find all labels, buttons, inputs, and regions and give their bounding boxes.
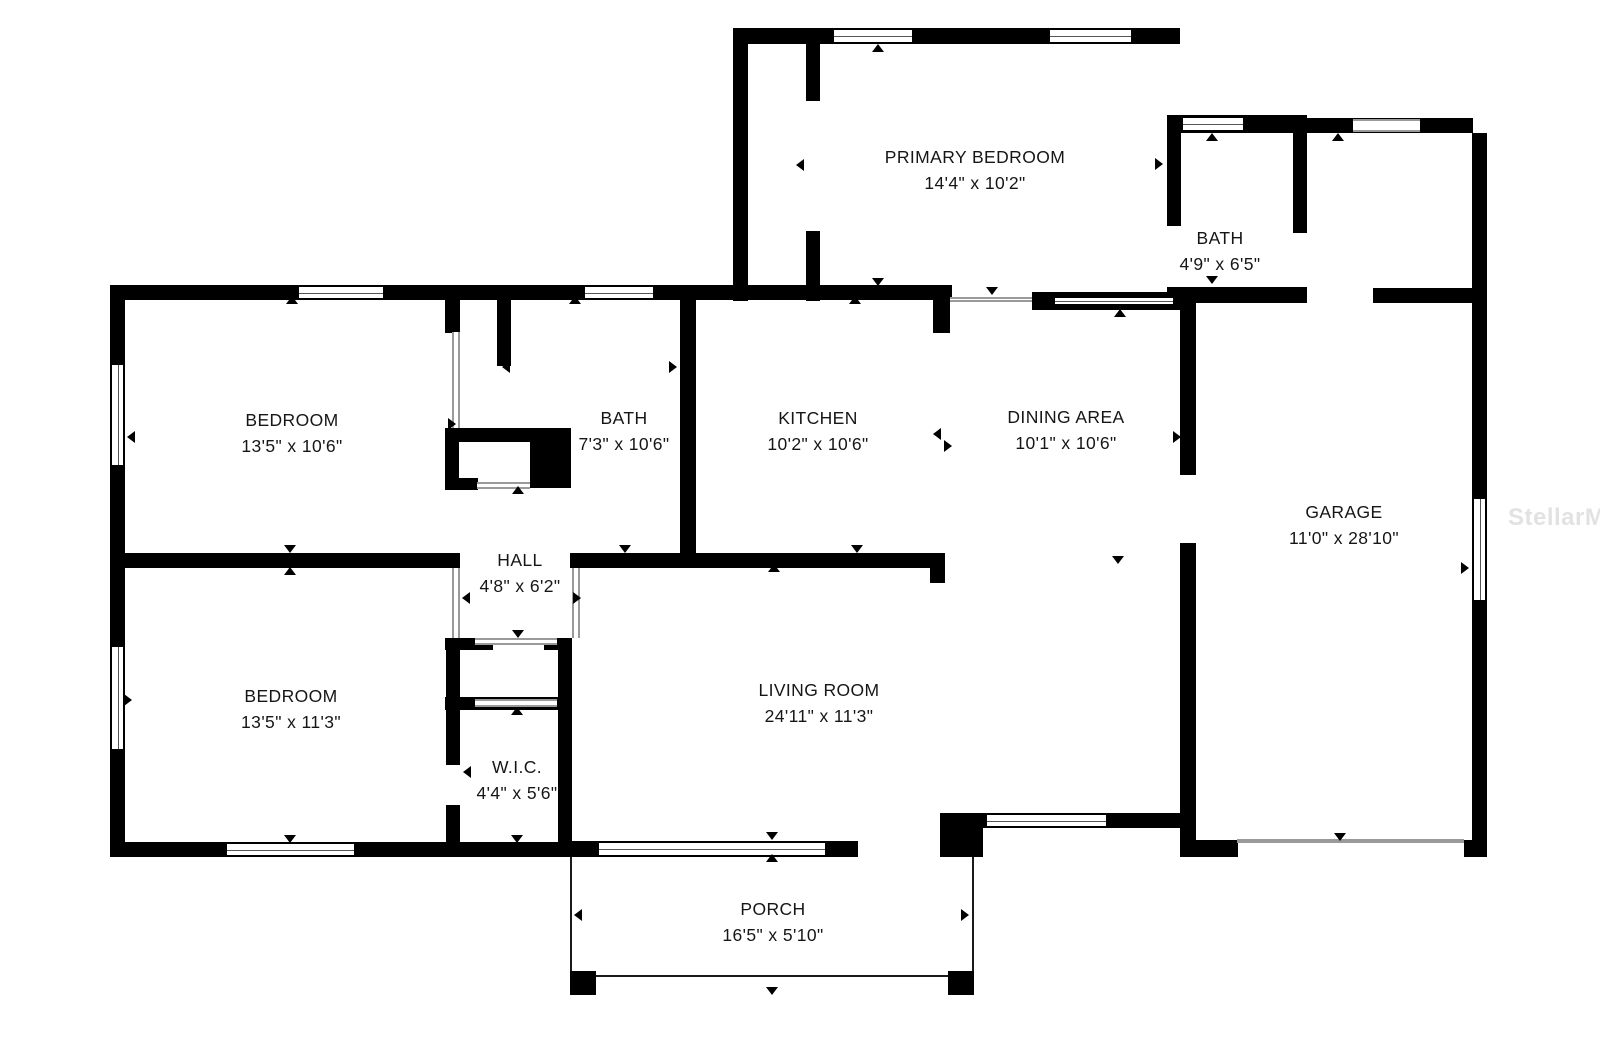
room-name: BEDROOM bbox=[241, 683, 341, 709]
wall-segment bbox=[558, 638, 572, 857]
room-name: BEDROOM bbox=[241, 407, 342, 433]
room-dimensions: 24'11" x 11'3" bbox=[758, 703, 879, 729]
wall-segment bbox=[497, 300, 511, 366]
window-mullion bbox=[1050, 36, 1131, 37]
direction-marker-icon bbox=[462, 592, 470, 604]
cased-opening bbox=[475, 699, 557, 707]
wall-segment bbox=[445, 300, 460, 333]
wall-segment bbox=[827, 841, 858, 857]
room-dimensions: 16'5" x 5'10" bbox=[722, 922, 823, 948]
room-name: HALL bbox=[480, 547, 561, 573]
room-name: BATH bbox=[578, 405, 669, 431]
room-label-porch: PORCH 16'5" x 5'10" bbox=[722, 896, 823, 948]
window-mullion bbox=[118, 365, 119, 465]
room-label-bedroom-lower: BEDROOM 13'5" x 11'3" bbox=[241, 683, 341, 735]
direction-marker-icon bbox=[768, 564, 780, 572]
window-mullion bbox=[834, 36, 912, 37]
cased-opening bbox=[452, 332, 460, 428]
wall-segment bbox=[806, 44, 820, 101]
direction-marker-icon bbox=[1206, 133, 1218, 141]
direction-marker-icon bbox=[1206, 276, 1218, 284]
wall-segment bbox=[1472, 133, 1487, 842]
direction-marker-icon bbox=[766, 854, 778, 862]
window-mullion bbox=[227, 850, 354, 851]
direction-marker-icon bbox=[944, 440, 952, 452]
room-label-primary-bedroom: PRIMARY BEDROOM 14'4" x 10'2" bbox=[885, 144, 1065, 196]
room-label-wic: W.I.C. 4'4" x 5'6" bbox=[477, 754, 558, 806]
direction-marker-icon bbox=[1155, 158, 1163, 170]
porch-outline bbox=[972, 857, 974, 975]
wall-segment bbox=[1196, 840, 1238, 857]
window bbox=[1053, 296, 1175, 306]
room-name: W.I.C. bbox=[477, 754, 558, 780]
wall-segment bbox=[570, 553, 942, 568]
room-name: LIVING ROOM bbox=[758, 677, 879, 703]
room-dimensions: 13'5" x 11'3" bbox=[241, 709, 341, 735]
direction-marker-icon bbox=[574, 909, 582, 921]
direction-marker-icon bbox=[619, 545, 631, 553]
window bbox=[1472, 497, 1487, 602]
room-name: GARAGE bbox=[1289, 499, 1399, 525]
direction-marker-icon bbox=[502, 361, 510, 373]
wall-segment bbox=[680, 300, 696, 568]
room-label-bath-top: BATH 4'9" x 6'5" bbox=[1180, 225, 1261, 277]
window bbox=[225, 842, 356, 857]
room-dimensions: 13'5" x 10'6" bbox=[241, 433, 342, 459]
wall-segment bbox=[446, 710, 460, 766]
direction-marker-icon bbox=[1461, 562, 1469, 574]
direction-marker-icon bbox=[1182, 687, 1190, 699]
direction-marker-icon bbox=[796, 159, 804, 171]
direction-marker-icon bbox=[284, 567, 296, 575]
room-dimensions: 14'4" x 10'2" bbox=[885, 170, 1065, 196]
direction-marker-icon bbox=[286, 296, 298, 304]
door-opening bbox=[446, 765, 460, 805]
direction-marker-icon bbox=[448, 418, 456, 430]
wall-segment bbox=[125, 553, 460, 568]
room-label-hall: HALL 4'8" x 6'2" bbox=[480, 547, 561, 599]
wall-segment bbox=[1464, 840, 1487, 857]
cased-opening bbox=[452, 568, 460, 638]
wall-segment bbox=[446, 650, 460, 698]
direction-marker-icon bbox=[511, 707, 523, 715]
direction-marker-icon bbox=[1114, 309, 1126, 317]
direction-marker-icon bbox=[872, 278, 884, 286]
direction-marker-icon bbox=[766, 832, 778, 840]
wall-segment bbox=[1180, 543, 1196, 857]
window-mullion bbox=[599, 849, 825, 850]
room-name: BATH bbox=[1180, 225, 1261, 251]
porch-post bbox=[948, 971, 974, 995]
direction-marker-icon bbox=[986, 287, 998, 295]
window bbox=[583, 285, 655, 300]
window-mullion bbox=[299, 293, 383, 294]
direction-marker-icon bbox=[872, 44, 884, 52]
porch-outline bbox=[570, 975, 974, 977]
wall-segment bbox=[1180, 310, 1196, 475]
room-label-garage: GARAGE 11'0" x 28'10" bbox=[1289, 499, 1399, 551]
room-dimensions: 4'9" x 6'5" bbox=[1180, 251, 1261, 277]
direction-marker-icon bbox=[933, 428, 941, 440]
window-mullion bbox=[987, 821, 1106, 822]
wall-segment bbox=[570, 841, 598, 857]
wall-segment bbox=[933, 300, 950, 333]
direction-marker-icon bbox=[512, 486, 524, 494]
window bbox=[110, 645, 125, 751]
direction-marker-icon bbox=[284, 545, 296, 553]
direction-marker-icon bbox=[1332, 133, 1344, 141]
window-mullion bbox=[1480, 499, 1481, 600]
window bbox=[297, 285, 385, 300]
room-dimensions: 10'2" x 10'6" bbox=[767, 431, 868, 457]
direction-marker-icon bbox=[284, 835, 296, 843]
window bbox=[985, 813, 1108, 828]
direction-marker-icon bbox=[463, 766, 471, 778]
window-mullion bbox=[1183, 124, 1243, 125]
wall-segment bbox=[530, 428, 571, 488]
room-dimensions: 4'4" x 5'6" bbox=[477, 780, 558, 806]
window-mullion bbox=[118, 647, 119, 749]
wall-segment bbox=[1293, 133, 1307, 233]
window bbox=[110, 363, 125, 467]
direction-marker-icon bbox=[669, 361, 677, 373]
wall-segment bbox=[445, 478, 478, 490]
room-label-bath-middle: BATH 7'3" x 10'6" bbox=[578, 405, 669, 457]
direction-marker-icon bbox=[127, 431, 135, 443]
window bbox=[1181, 116, 1245, 132]
direction-marker-icon bbox=[1112, 556, 1124, 564]
direction-marker-icon bbox=[573, 592, 581, 604]
direction-marker-icon bbox=[569, 296, 581, 304]
wall-segment bbox=[930, 553, 945, 583]
room-dimensions: 7'3" x 10'6" bbox=[578, 431, 669, 457]
cased-opening bbox=[950, 297, 1032, 302]
room-label-dining-area: DINING AREA 10'1" x 10'6" bbox=[1007, 404, 1124, 456]
direction-marker-icon bbox=[124, 694, 132, 706]
window bbox=[1048, 28, 1133, 44]
cased-opening bbox=[1237, 839, 1464, 843]
direction-marker-icon bbox=[512, 630, 524, 638]
room-dimensions: 11'0" x 28'10" bbox=[1289, 525, 1399, 551]
direction-marker-icon bbox=[851, 545, 863, 553]
direction-marker-icon bbox=[766, 987, 778, 995]
window-mullion bbox=[585, 293, 653, 294]
direction-marker-icon bbox=[961, 909, 969, 921]
room-name: KITCHEN bbox=[767, 405, 868, 431]
room-label-living-room: LIVING ROOM 24'11" x 11'3" bbox=[758, 677, 879, 729]
porch-post bbox=[570, 971, 596, 995]
room-name: PORCH bbox=[722, 896, 823, 922]
window bbox=[832, 28, 914, 44]
direction-marker-icon bbox=[849, 296, 861, 304]
wall-segment bbox=[733, 28, 748, 301]
wall-segment bbox=[446, 804, 460, 857]
direction-marker-icon bbox=[1173, 431, 1181, 443]
watermark: StellarMLS bbox=[1508, 504, 1600, 532]
window-mullion bbox=[1055, 301, 1173, 302]
window bbox=[597, 841, 827, 857]
wall-segment bbox=[940, 813, 983, 857]
direction-marker-icon bbox=[511, 835, 523, 843]
cased-opening bbox=[475, 638, 557, 645]
room-dimensions: 4'8" x 6'2" bbox=[480, 573, 561, 599]
porch-outline bbox=[570, 857, 572, 977]
room-name: PRIMARY BEDROOM bbox=[885, 144, 1065, 170]
direction-marker-icon bbox=[563, 766, 571, 778]
cased-opening bbox=[1353, 119, 1420, 132]
wall-segment bbox=[1167, 133, 1181, 226]
room-name: DINING AREA bbox=[1007, 404, 1124, 430]
room-dimensions: 10'1" x 10'6" bbox=[1007, 430, 1124, 456]
room-label-bedroom-upper: BEDROOM 13'5" x 10'6" bbox=[241, 407, 342, 459]
wall-segment bbox=[1373, 288, 1473, 303]
direction-marker-icon bbox=[1334, 833, 1346, 841]
floor-plan: StellarMLS PRIMARY BEDROOM 14'4" x 10'2"… bbox=[0, 0, 1600, 1038]
room-label-kitchen: KITCHEN 10'2" x 10'6" bbox=[767, 405, 868, 457]
